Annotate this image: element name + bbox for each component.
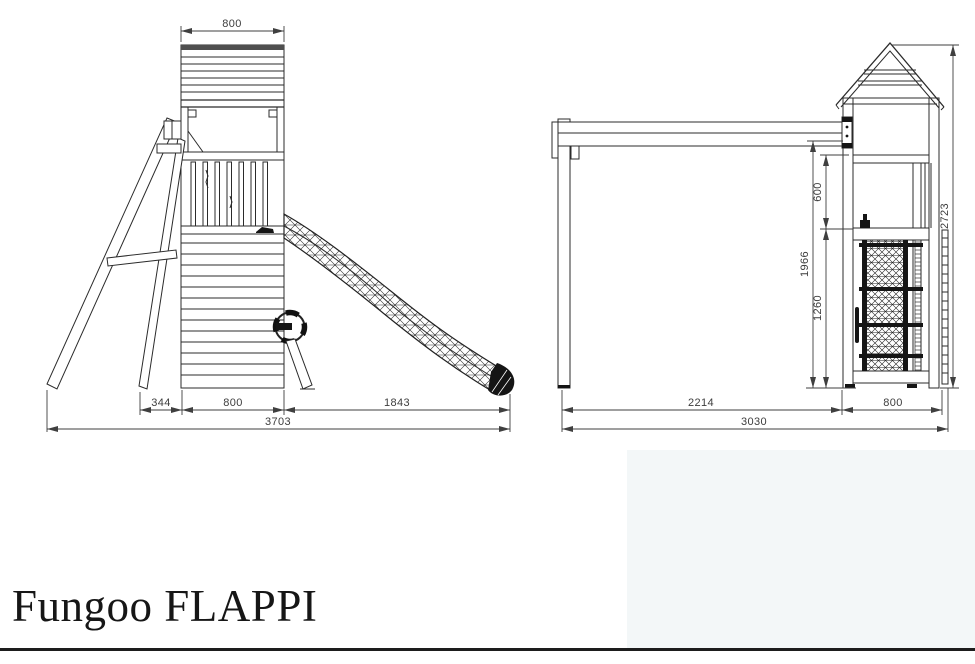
- bottom-rule: [0, 648, 975, 651]
- front-view-drawing: 1966 600 1260 2723 2214 800 3030: [552, 43, 959, 432]
- dim-front-swing-span: 2214: [688, 397, 714, 409]
- dim-side-roof-width: 800: [222, 18, 242, 30]
- dimension-roof-width: 800: [181, 18, 284, 42]
- net-anchor: [860, 214, 870, 228]
- dim-front-total-width: 3030: [741, 416, 767, 428]
- dim-front-platform-height: 1260: [812, 295, 824, 321]
- dim-front-tower-width: 800: [883, 397, 903, 409]
- dim-side-slide-span: 1843: [384, 397, 410, 409]
- dim-side-tower-width: 800: [223, 397, 243, 409]
- slide: [284, 214, 514, 396]
- side-bottom-dimensions: 344 800 1843 3703: [47, 390, 510, 432]
- hand-grip: [855, 307, 859, 343]
- tower-side: [181, 45, 284, 388]
- dim-side-total-length: 3703: [265, 416, 291, 428]
- drawing-title: Fungoo FLAPPI: [12, 580, 317, 632]
- access-ladder: [47, 118, 185, 389]
- front-bottom-dimensions: 2214 800 3030: [562, 388, 948, 432]
- dim-front-total-height: 2723: [939, 203, 951, 229]
- front-support-leg: [286, 339, 315, 389]
- dim-front-frame-height: 1966: [799, 251, 811, 277]
- dim-front-beam-to-platform: 600: [812, 182, 824, 202]
- technical-drawing-sheet: 800 344 800 1843 3703: [0, 0, 975, 664]
- steering-wheel: [276, 313, 305, 342]
- background-tint-panel: [627, 450, 975, 648]
- dim-side-ladder-span: 344: [151, 397, 171, 409]
- side-view-drawing: 800 344 800 1843 3703: [47, 18, 514, 432]
